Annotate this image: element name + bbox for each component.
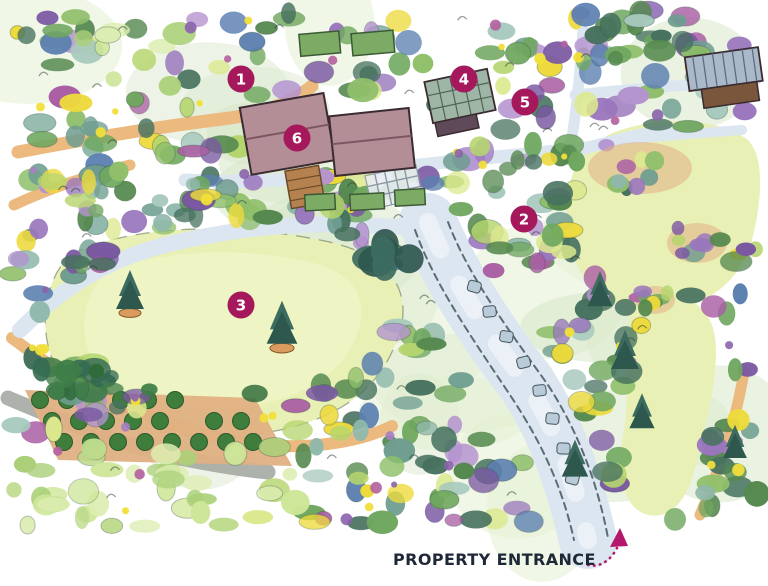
property-entrance-label: PROPERTY ENTRANCE bbox=[393, 550, 596, 569]
map-marker-3: 3 bbox=[228, 292, 255, 319]
map-marker-2: 2 bbox=[511, 206, 538, 233]
map-marker-6: 6 bbox=[284, 125, 311, 152]
garden-map-illustration: 123456 PROPERTY ENTRANCE bbox=[0, 0, 768, 586]
svg-text:3: 3 bbox=[236, 297, 246, 315]
svg-text:5: 5 bbox=[520, 94, 530, 112]
svg-text:1: 1 bbox=[236, 71, 246, 89]
map-marker-1: 1 bbox=[228, 66, 255, 93]
map-canvas: 123456 bbox=[0, 0, 768, 586]
svg-text:4: 4 bbox=[459, 71, 469, 89]
map-marker-4: 4 bbox=[451, 66, 478, 93]
svg-text:2: 2 bbox=[519, 211, 529, 229]
svg-text:6: 6 bbox=[292, 130, 302, 148]
map-marker-5: 5 bbox=[512, 89, 539, 116]
